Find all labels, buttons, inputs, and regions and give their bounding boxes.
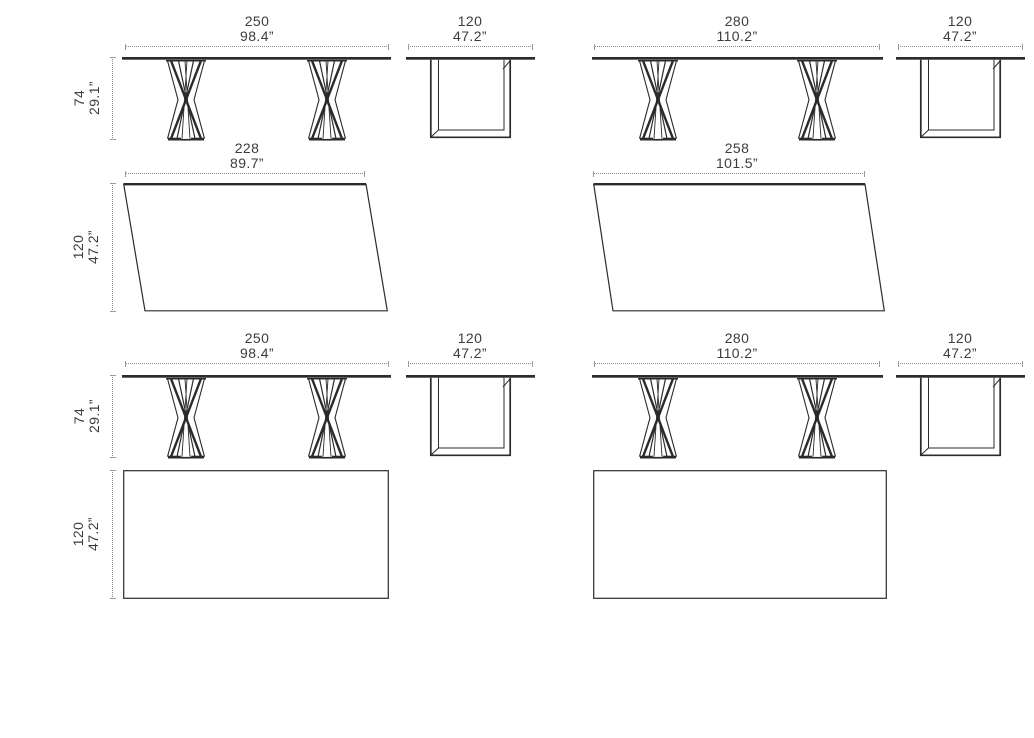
table-top-view-slanted-258 xyxy=(593,183,885,312)
width-dim-line xyxy=(593,173,865,174)
width-dim-label-228: 228 89.7” xyxy=(230,141,264,171)
crossed-leg xyxy=(307,379,347,459)
crossed-leg xyxy=(166,379,206,459)
side-frame xyxy=(896,375,1025,455)
width-dim-line xyxy=(125,46,389,47)
dim-inches: 47.2” xyxy=(943,346,977,361)
depth-dim-label-120-row2: 120 47.2” xyxy=(71,230,101,264)
depth-dim-line xyxy=(112,470,113,599)
dim-inches: 47.2” xyxy=(86,230,101,264)
dim-cm: 120 xyxy=(71,522,86,547)
tabletop-edge xyxy=(122,57,391,60)
width-dim-line xyxy=(594,46,880,47)
table-top-view-rect-280 xyxy=(593,470,887,599)
dim-inches: 47.2” xyxy=(453,346,487,361)
top-outline xyxy=(594,471,887,599)
width-dim-line xyxy=(125,363,389,364)
width-dim-label-120-row3-left: 120 47.2” xyxy=(453,331,487,361)
table-side-view-row3-right xyxy=(896,375,1025,459)
width-dim-label-280-row1: 280 110.2” xyxy=(716,14,757,44)
dim-cm: 280 xyxy=(725,331,750,346)
dim-cm: 120 xyxy=(71,235,86,260)
width-dim-label-250-row3: 250 98.4” xyxy=(240,331,274,361)
diagram-canvas: 250 98.4” 74 29.1” 120 47.2” 280 110.2” … xyxy=(0,0,1034,738)
top-outline xyxy=(594,184,885,311)
crossed-leg xyxy=(638,379,678,459)
table-side-view-row3-left xyxy=(406,375,535,459)
width-dim-label-120-row1-right: 120 47.2” xyxy=(943,14,977,44)
crossed-leg xyxy=(638,61,678,141)
top-outline xyxy=(124,471,389,599)
width-dim-label-120-row1-left: 120 47.2” xyxy=(453,14,487,44)
dim-cm: 250 xyxy=(245,331,270,346)
height-dim-label-74-row1: 74 29.1” xyxy=(72,81,102,115)
depth-dim-line xyxy=(112,183,113,312)
dim-cm: 258 xyxy=(725,141,750,156)
table-top-view-slanted-228 xyxy=(123,183,388,312)
side-frame xyxy=(406,375,535,455)
dim-cm: 250 xyxy=(245,14,270,29)
dim-cm: 120 xyxy=(948,14,973,29)
side-frame xyxy=(896,57,1025,137)
crossed-leg xyxy=(797,379,837,459)
dim-inches: 110.2” xyxy=(716,346,757,361)
dim-inches: 47.2” xyxy=(453,29,487,44)
dim-cm: 74 xyxy=(72,90,87,106)
height-dim-line xyxy=(112,375,113,458)
crossed-leg xyxy=(307,61,347,141)
dim-inches: 98.4” xyxy=(240,346,274,361)
dim-cm: 120 xyxy=(948,331,973,346)
table-side-view-row1-right xyxy=(896,57,1025,141)
dim-inches: 29.1” xyxy=(87,81,102,115)
dim-inches: 29.1” xyxy=(87,399,102,433)
width-dim-line xyxy=(408,46,533,47)
width-dim-label-280-row3: 280 110.2” xyxy=(716,331,757,361)
table-front-view-280-row1 xyxy=(592,57,883,141)
crossed-leg xyxy=(797,61,837,141)
width-dim-label-250-row1: 250 98.4” xyxy=(240,14,274,44)
width-dim-line xyxy=(408,363,533,364)
crossed-leg xyxy=(166,61,206,141)
table-front-view-250-row1 xyxy=(122,57,391,141)
dim-cm: 74 xyxy=(72,408,87,424)
tabletop-edge xyxy=(592,375,883,378)
side-frame xyxy=(406,57,535,137)
height-dim-label-74-row3: 74 29.1” xyxy=(72,399,102,433)
table-front-view-250-row3 xyxy=(122,375,391,459)
width-dim-line xyxy=(898,363,1023,364)
width-dim-line xyxy=(898,46,1023,47)
depth-dim-label-120-row4: 120 47.2” xyxy=(71,517,101,551)
height-dim-line xyxy=(112,57,113,140)
width-dim-label-120-row3-right: 120 47.2” xyxy=(943,331,977,361)
dim-cm: 120 xyxy=(458,331,483,346)
dim-inches: 47.2” xyxy=(943,29,977,44)
width-dim-label-258: 258 101.5” xyxy=(716,141,758,171)
table-front-view-280-row3 xyxy=(592,375,883,459)
dim-cm: 120 xyxy=(458,14,483,29)
width-dim-line xyxy=(125,173,365,174)
tabletop-edge xyxy=(592,57,883,60)
tabletop-edge xyxy=(122,375,391,378)
width-dim-line xyxy=(594,363,880,364)
dim-inches: 89.7” xyxy=(230,156,264,171)
dim-cm: 280 xyxy=(725,14,750,29)
dim-inches: 110.2” xyxy=(716,29,757,44)
dim-cm: 228 xyxy=(235,141,260,156)
table-top-view-rect-250 xyxy=(123,470,389,599)
dim-inches: 47.2” xyxy=(86,517,101,551)
dim-inches: 101.5” xyxy=(716,156,758,171)
table-side-view-row1-left xyxy=(406,57,535,141)
dim-inches: 98.4” xyxy=(240,29,274,44)
top-outline xyxy=(124,184,388,311)
